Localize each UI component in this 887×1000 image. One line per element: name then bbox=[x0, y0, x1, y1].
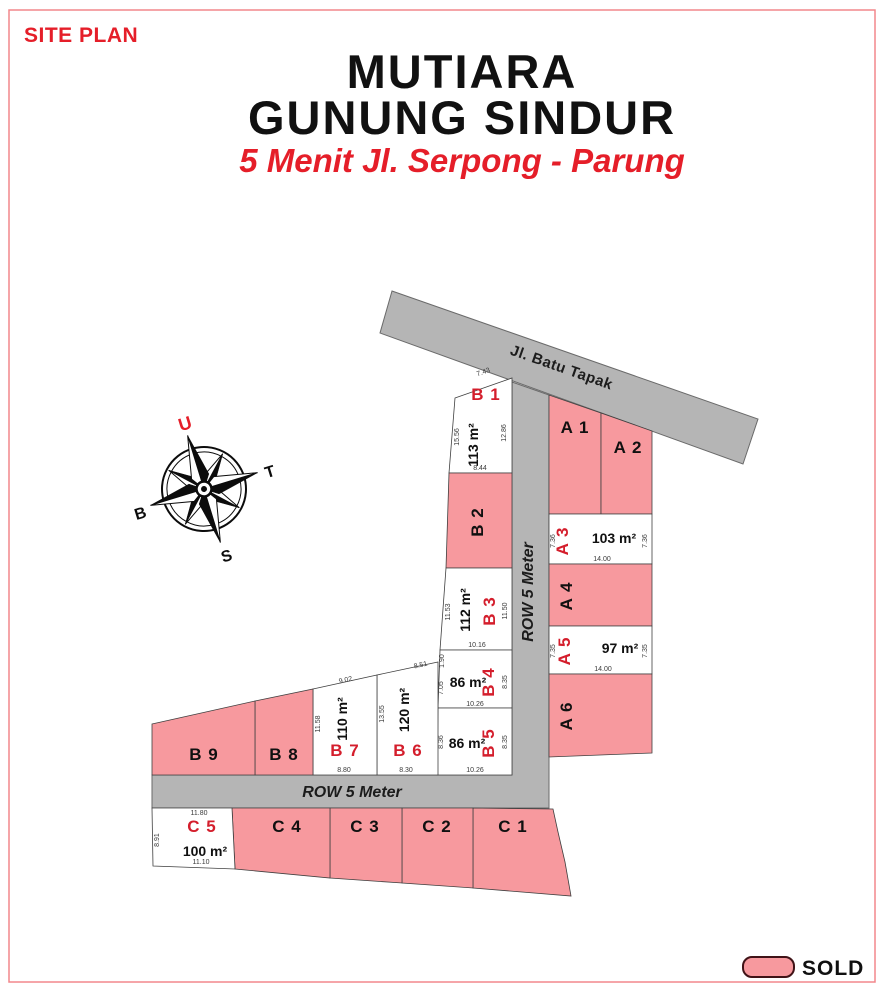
lot-C1-label: C 1 bbox=[498, 817, 527, 836]
road-label-row-horizontal: ROW 5 Meter bbox=[302, 784, 402, 801]
site-plan-canvas: SITE PLAN MUTIARA GUNUNG SINDUR 5 Menit … bbox=[0, 0, 887, 1000]
lot-B4-dim-right: 8.35 bbox=[502, 675, 509, 689]
lot-C5-dim-left: 8.91 bbox=[154, 833, 161, 847]
lot-B6-dim-left: 13.55 bbox=[379, 705, 386, 723]
lot-B1-label: B 1 bbox=[471, 385, 500, 404]
lot-B3-dim-left: 11.53 bbox=[445, 603, 452, 620]
lot-C5-dim-bottom: 11.10 bbox=[193, 859, 210, 866]
lot-A3-dim-left: 7.36 bbox=[550, 534, 557, 548]
lot-A5-dim-left: 7.35 bbox=[550, 644, 557, 658]
lot-B2: B 2 bbox=[446, 473, 512, 568]
page-title-line2: GUNUNG SINDUR bbox=[248, 91, 676, 144]
lot-B3-area: 112 m² bbox=[457, 588, 473, 632]
lot-A5-label: A 5 bbox=[555, 637, 574, 666]
lot-B1-area: 113 m² bbox=[465, 423, 481, 467]
lot-B3-dim-bottom: 10.16 bbox=[468, 642, 486, 649]
compass-label-south: S bbox=[219, 547, 234, 566]
lot-C3: C 3 bbox=[330, 808, 402, 883]
site-plan-page: SITE PLAN MUTIARA GUNUNG SINDUR 5 Menit … bbox=[0, 0, 887, 1000]
lot-B5: B 5 86 m² 8.36 8.35 10.26 bbox=[437, 708, 512, 775]
compass-rose: U T S B bbox=[111, 393, 298, 587]
lot-C5-label: C 5 bbox=[187, 817, 216, 836]
lot-B5-dim-bottom: 10.26 bbox=[466, 767, 484, 774]
lot-A5-area: 97 m² bbox=[602, 640, 639, 656]
lot-B1-dim-bottom: 8.44 bbox=[473, 465, 487, 472]
lot-B4-dim-topleft: 1.90 bbox=[439, 654, 446, 668]
lot-C2-label: C 2 bbox=[422, 817, 451, 836]
lot-B6-label: B 6 bbox=[393, 741, 422, 760]
lot-A6-label: A 6 bbox=[557, 702, 576, 731]
lot-A1-label: A 1 bbox=[561, 418, 590, 437]
compass-label-west: B bbox=[133, 504, 149, 524]
lot-C5: C 5 100 m² 11.80 8.91 11.10 bbox=[152, 808, 235, 869]
lot-A2-shape bbox=[601, 413, 652, 514]
lot-A4-label: A 4 bbox=[557, 582, 576, 611]
lot-B5-area: 86 m² bbox=[449, 735, 486, 751]
lot-B7-dim-bottom: 8.80 bbox=[337, 767, 351, 774]
lot-A3: A 3 103 m² 7.36 7.36 14.00 bbox=[549, 514, 652, 564]
lot-A5-dim-right: 7.35 bbox=[642, 644, 649, 658]
lot-C5-area: 100 m² bbox=[183, 843, 228, 859]
page-subtitle: 5 Menit Jl. Serpong - Parung bbox=[239, 142, 685, 179]
lot-B6-dim-bottom: 8.30 bbox=[399, 767, 413, 774]
lot-A3-area: 103 m² bbox=[592, 530, 637, 546]
lot-B4-dim-bottom: 10.26 bbox=[466, 701, 484, 708]
lot-C2: C 2 bbox=[402, 808, 473, 888]
lot-B3-dim-right: 11.50 bbox=[502, 602, 509, 619]
compass-label-east: T bbox=[263, 463, 278, 482]
lot-A6: A 6 bbox=[549, 674, 652, 757]
lot-B5-dim-left: 8.36 bbox=[438, 735, 445, 749]
lot-C1: C 1 bbox=[473, 808, 571, 896]
lot-A5: A 5 97 m² 7.35 7.35 14.00 bbox=[549, 626, 652, 674]
lot-B9: B 9 bbox=[152, 701, 255, 775]
legend-sold-label: SOLD bbox=[802, 957, 864, 980]
lot-A3-dim-right: 7.36 bbox=[642, 534, 649, 548]
lot-B4-dim-left: 7.05 bbox=[438, 681, 445, 695]
lot-B3: B 3 112 m² 11.53 11.50 10.16 bbox=[440, 568, 512, 650]
road-label-row-vertical: ROW 5 Meter bbox=[520, 541, 537, 641]
lot-B1-dim-left: 15.56 bbox=[454, 428, 461, 446]
lot-C4: C 4 bbox=[232, 808, 330, 878]
lot-A5-dim-bottom: 14.00 bbox=[594, 666, 612, 673]
lot-B2-label: B 2 bbox=[468, 507, 487, 536]
lot-B1-dim-right: 12.86 bbox=[501, 424, 508, 442]
lot-B8: B 8 bbox=[255, 689, 313, 775]
lot-B7-dim-left: 11.58 bbox=[315, 715, 322, 732]
lot-B6: B 6 120 m² 8.51 13.55 8.30 bbox=[377, 661, 438, 775]
lot-C4-label: C 4 bbox=[272, 817, 301, 836]
lot-B7-label: B 7 bbox=[330, 741, 359, 760]
legend: SOLD bbox=[743, 957, 864, 980]
lot-C3-label: C 3 bbox=[350, 817, 379, 836]
lot-B6-area: 120 m² bbox=[396, 687, 412, 732]
lot-A3-dim-bottom: 14.00 bbox=[593, 556, 611, 563]
site-plan-label: SITE PLAN bbox=[24, 24, 138, 47]
lot-B7-area: 110 m² bbox=[334, 697, 350, 741]
legend-sold-swatch bbox=[743, 957, 794, 977]
lot-B3-label: B 3 bbox=[480, 596, 499, 625]
lot-A1: A 1 bbox=[549, 395, 601, 514]
lot-B9-label: B 9 bbox=[189, 745, 218, 764]
compass-label-north: U bbox=[176, 412, 194, 435]
lot-B4-area: 86 m² bbox=[450, 674, 487, 690]
lot-B1: B 1 113 m² 7.43 15.56 12.86 8.44 bbox=[449, 367, 512, 473]
lot-C5-dim-top: 11.80 bbox=[191, 810, 208, 817]
lot-A2-label: A 2 bbox=[614, 438, 643, 457]
lot-A2: A 2 bbox=[601, 413, 652, 514]
lot-A1-shape bbox=[549, 395, 601, 514]
lot-B5-dim-right: 8.35 bbox=[502, 735, 509, 749]
lot-B8-label: B 8 bbox=[269, 745, 298, 764]
lot-A4: A 4 bbox=[549, 564, 652, 626]
lot-B4: B 4 86 m² 1.90 7.05 8.35 10.26 bbox=[438, 650, 512, 708]
lot-B7: B 7 110 m² 9.02 11.58 8.80 bbox=[313, 675, 377, 775]
